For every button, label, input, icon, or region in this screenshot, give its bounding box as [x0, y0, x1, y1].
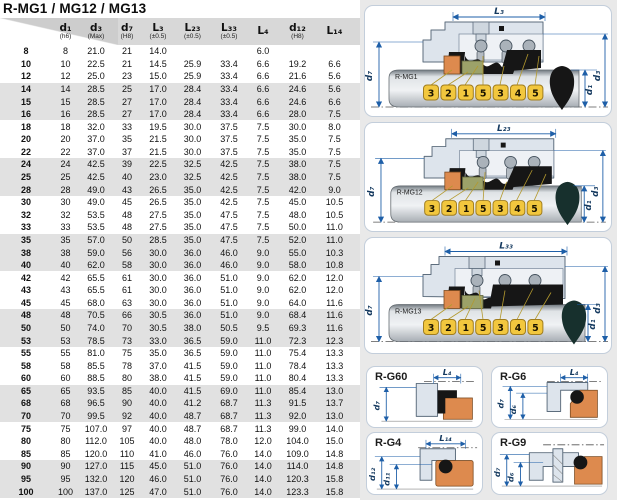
table-row: 606088.58038.041.559.011.080.413.3: [0, 372, 360, 385]
seat-title: R-G60: [375, 371, 407, 383]
table-cell: 127.0: [79, 461, 113, 471]
column-header: d₁(h6): [52, 18, 79, 45]
table-row: 252542.54023.032.542.57.538.07.5: [0, 171, 360, 184]
table-cell: 50.5: [210, 323, 248, 333]
table-cell: 76.0: [210, 474, 248, 484]
table-cell: 40.0: [141, 436, 175, 446]
table-cell: 80.4: [278, 373, 317, 383]
balloon-number: 1: [462, 323, 469, 334]
table-cell: 70: [52, 411, 79, 421]
table-cell: 9.0: [248, 285, 278, 295]
table-cell: 35: [113, 134, 141, 144]
balloon-number: 5: [480, 323, 487, 334]
table-cell: 75: [52, 424, 79, 434]
table-cell: 7.5: [317, 109, 352, 119]
row-label: 28: [0, 185, 52, 195]
table-cell: 45.0: [141, 461, 175, 471]
balloon-number: 4: [514, 204, 521, 215]
table-cell: 74.0: [79, 323, 113, 333]
table-cell: 20: [52, 134, 79, 144]
table-cell: 61: [113, 273, 141, 283]
table-cell: 12.0: [248, 436, 278, 446]
balloon-number: 3: [428, 89, 435, 100]
table-cell: 33: [113, 122, 141, 132]
table-cell: 10: [52, 59, 79, 69]
table-cell: 22.5: [79, 59, 113, 69]
table-cell: 68: [52, 398, 79, 408]
table-cell: 57.0: [79, 235, 113, 245]
table-cell: 109.0: [278, 449, 317, 459]
row-label: 32: [0, 210, 52, 220]
balloon-number: 3: [429, 204, 435, 215]
table-cell: 11.0: [248, 336, 278, 346]
table-cell: 37.5: [210, 122, 248, 132]
table-cell: 13.3: [317, 361, 352, 371]
table-cell: 56: [113, 248, 141, 258]
table-row: 323253.54827.535.047.57.548.010.5: [0, 209, 360, 222]
table-cell: 30: [52, 197, 79, 207]
balloon-number: 3: [428, 323, 435, 334]
table-cell: 46.0: [210, 260, 248, 270]
table-cell: 21: [113, 46, 141, 56]
row-label: 95: [0, 474, 52, 484]
table-cell: 14.0: [317, 424, 352, 434]
table-cell: 37.0: [79, 147, 113, 157]
table-cell: 36.0: [175, 260, 210, 270]
table-cell: 6.6: [248, 97, 278, 107]
table-row: 8821.02114.06.0: [0, 45, 360, 58]
table-cell: 13.0: [317, 411, 352, 421]
table-cell: 47.5: [210, 222, 248, 232]
table-cell: 6.6: [248, 71, 278, 81]
table-cell: 51.0: [210, 273, 248, 283]
table-cell: 27: [113, 97, 141, 107]
row-label: 65: [0, 386, 52, 396]
balloon-number: 1: [462, 89, 469, 100]
table-cell: 11.0: [248, 373, 278, 383]
table-cell: 24.6: [278, 97, 317, 107]
table-cell: 32.5: [175, 159, 210, 169]
table-cell: 35.0: [175, 235, 210, 245]
table-row: 151528.52717.028.433.46.624.66.6: [0, 95, 360, 108]
table-cell: 36.5: [175, 336, 210, 346]
table-cell: 7.5: [248, 235, 278, 245]
table-cell: 21.5: [141, 147, 175, 157]
table-cell: 78.5: [79, 336, 113, 346]
table-cell: 68.0: [79, 298, 113, 308]
table-cell: 51.0: [175, 487, 210, 497]
table-cell: 110: [113, 449, 141, 459]
table-cell: 37.0: [141, 361, 175, 371]
table-cell: 25.9: [175, 71, 210, 81]
svg-text:d₃: d₃: [591, 187, 601, 197]
table-cell: 7.5: [248, 222, 278, 232]
table-cell: 59.0: [210, 373, 248, 383]
table-body: 8821.02114.06.0101022.52114.525.933.46.6…: [0, 45, 360, 498]
svg-text:L₃₃: L₃₃: [499, 242, 513, 252]
table-cell: 63: [113, 298, 141, 308]
seat-face: [444, 291, 460, 309]
table-row: 353557.05028.535.047.57.552.011.0: [0, 234, 360, 247]
seal-cross-section-rmg1: 3215345 R-MG1 L₃ d₇ d₁ d₃: [365, 6, 611, 116]
row-label: 33: [0, 222, 52, 232]
page-title: R-MG1 / MG12 / MG13: [3, 1, 146, 16]
table-cell: 50.0: [278, 222, 317, 232]
table-cell: 30.0: [141, 298, 175, 308]
table-cell: 76.0: [210, 449, 248, 459]
table-cell: 62.0: [79, 260, 113, 270]
table-cell: 41.5: [175, 386, 210, 396]
table-cell: 46.0: [210, 248, 248, 258]
table-row: 585885.57837.041.559.011.078.413.3: [0, 359, 360, 372]
table-cell: 7.5: [248, 197, 278, 207]
table-cell: 100: [52, 487, 79, 497]
table-cell: 39: [113, 159, 141, 169]
row-label: 16: [0, 109, 52, 119]
table-cell: 12.0: [317, 285, 352, 295]
table-cell: 53.5: [79, 222, 113, 232]
table-cell: 21: [113, 59, 141, 69]
table-cell: 42.5: [210, 159, 248, 169]
svg-text:L₄: L₄: [570, 367, 579, 377]
table-cell: 35.0: [141, 348, 175, 358]
table-cell: 24.6: [278, 84, 317, 94]
table-cell: 90: [113, 398, 141, 408]
table-cell: 78: [113, 361, 141, 371]
table-row: 9090127.011545.051.076.014.0114.014.8: [0, 460, 360, 473]
table-cell: 19.5: [141, 122, 175, 132]
set-screw: [499, 26, 504, 31]
table-cell: 88.5: [79, 373, 113, 383]
table-cell: 11.0: [248, 361, 278, 371]
table-cell: 37.5: [210, 134, 248, 144]
table-cell: 30.5: [141, 323, 175, 333]
table-cell: 11.3: [248, 411, 278, 421]
table-cell: 46.0: [175, 449, 210, 459]
table-cell: 93.5: [79, 386, 113, 396]
table-cell: 7.5: [248, 210, 278, 220]
table-row: 505074.07030.538.050.59.569.311.6: [0, 322, 360, 335]
seat-title: R-G9: [500, 437, 526, 449]
table-row: 686896.59040.041.268.711.391.513.7: [0, 397, 360, 410]
table-cell: 9.0: [248, 248, 278, 258]
table-cell: 6.6: [248, 59, 278, 69]
table-cell: 48.7: [175, 411, 210, 421]
table-cell: 33.4: [210, 71, 248, 81]
table-cell: 38: [52, 248, 79, 258]
table-cell: 99.0: [278, 424, 317, 434]
row-label: 68: [0, 398, 52, 408]
table-cell: 48.7: [175, 424, 210, 434]
balloon-number: 5: [532, 89, 539, 100]
table-cell: 15.8: [317, 474, 352, 484]
table-row: 8080112.010540.048.078.012.0104.015.0: [0, 435, 360, 448]
table-cell: 33.4: [210, 109, 248, 119]
table-cell: 38.0: [278, 172, 317, 182]
table-cell: 60: [52, 373, 79, 383]
table-cell: 9.0: [248, 310, 278, 320]
svg-text:L₂₃: L₂₃: [497, 124, 510, 134]
table-cell: 30.0: [141, 260, 175, 270]
row-label: 55: [0, 348, 52, 358]
column-header: [0, 18, 52, 45]
table-cell: 33.4: [210, 97, 248, 107]
table-cell: 13.3: [317, 348, 352, 358]
table-cell: 42.5: [210, 172, 248, 182]
table-cell: 90: [52, 461, 79, 471]
primary-face: [462, 177, 483, 190]
table-cell: 81.0: [79, 348, 113, 358]
table-cell: 49.0: [79, 197, 113, 207]
table-row: 424265.56130.036.051.09.062.012.0: [0, 271, 360, 284]
table-cell: 68.7: [210, 411, 248, 421]
seat-title: R-G4: [375, 437, 401, 449]
table-cell: 28.4: [175, 97, 210, 107]
table-cell: 114.0: [278, 461, 317, 471]
table-cell: 9.0: [248, 260, 278, 270]
table-cell: 72.3: [278, 336, 317, 346]
table-cell: 7.5: [317, 172, 352, 182]
table-row: 101022.52114.525.933.46.619.26.6: [0, 58, 360, 71]
column-header: d₁₂(H8): [278, 18, 317, 45]
column-header: d₃(Max): [79, 18, 113, 45]
dim-d3-label: d₃: [593, 71, 603, 81]
table-cell: 46.0: [141, 474, 175, 484]
table-cell: 51.0: [210, 298, 248, 308]
table-cell: 58.0: [278, 260, 317, 270]
row-label: 30: [0, 197, 52, 207]
table-row: 202037.03521.530.037.57.535.07.5: [0, 133, 360, 146]
table-cell: 51.0: [175, 461, 210, 471]
table-cell: 85: [52, 449, 79, 459]
svg-text:L₄: L₄: [443, 367, 452, 377]
table-cell: 48: [113, 210, 141, 220]
table-cell: 33.0: [141, 336, 175, 346]
table-row: 707099.59240.048.768.711.392.013.0: [0, 410, 360, 423]
table-cell: 11.6: [317, 310, 352, 320]
table-cell: 42.5: [79, 172, 113, 182]
table-cell: 123.3: [278, 487, 317, 497]
balloon-number: 5: [480, 204, 486, 215]
table-cell: 30.0: [141, 273, 175, 283]
table-cell: 137.0: [79, 487, 113, 497]
table-cell: 75.4: [278, 348, 317, 358]
balloon-number: 2: [446, 204, 452, 215]
table-cell: 42.5: [210, 197, 248, 207]
table-cell: 14: [52, 84, 79, 94]
dim-top-label: L₃: [494, 7, 504, 17]
diagram-panel-rmg1: 3215345 R-MG1 L₃ d₇ d₁ d₃: [364, 5, 612, 117]
table-row: 100100137.012547.051.076.014.0123.315.8: [0, 485, 360, 498]
table-cell: 7.5: [248, 122, 278, 132]
table-cell: 51.0: [210, 285, 248, 295]
table-cell: 15: [52, 97, 79, 107]
table-cell: 38.0: [141, 373, 175, 383]
table-cell: 5.6: [317, 71, 352, 81]
table-cell: 28.5: [79, 97, 113, 107]
table-cell: 120.0: [79, 449, 113, 459]
balloon-number: 5: [480, 89, 487, 100]
table-cell: 120: [113, 474, 141, 484]
svg-text:L₁₄: L₁₄: [439, 433, 452, 443]
svg-text:d₃: d₃: [593, 303, 603, 313]
table-cell: 104.0: [278, 436, 317, 446]
table-cell: 28.4: [175, 84, 210, 94]
table-cell: 6.6: [317, 59, 352, 69]
table-cell: 125: [113, 487, 141, 497]
table-cell: 36.0: [175, 298, 210, 308]
row-label: 58: [0, 361, 52, 371]
table-cell: 69.0: [210, 386, 248, 396]
row-label: 14: [0, 84, 52, 94]
table-cell: 9.0: [248, 273, 278, 283]
table-cell: 38.0: [175, 323, 210, 333]
balloon-number: 3: [497, 89, 504, 100]
table-cell: 6.6: [248, 109, 278, 119]
shaft-label: R-MG12: [397, 190, 423, 197]
table-cell: 49.0: [79, 185, 113, 195]
row-label: 38: [0, 248, 52, 258]
row-label: 60: [0, 373, 52, 383]
column-header: L₄: [248, 18, 278, 45]
dim-d1-label: d₁: [585, 85, 595, 95]
table-row: 7575107.09740.048.768.711.399.014.0: [0, 422, 360, 435]
table-cell: 33.4: [210, 84, 248, 94]
table-cell: 7.5: [317, 134, 352, 144]
table-cell: 36.0: [175, 273, 210, 283]
table-cell: 47.5: [210, 235, 248, 245]
table-cell: 30.0: [175, 122, 210, 132]
table-cell: 58: [113, 260, 141, 270]
table-cell: 48: [113, 222, 141, 232]
row-label: 100: [0, 487, 52, 497]
diagram-column: 3215345 R-MG1 L₃ d₇ d₁ d₃: [360, 0, 617, 500]
row-label: 75: [0, 424, 52, 434]
table-cell: 70: [113, 323, 141, 333]
table-cell: 92: [113, 411, 141, 421]
row-label: 42: [0, 273, 52, 283]
table-cell: 65.5: [79, 285, 113, 295]
table-row: 282849.04326.535.042.57.542.09.0: [0, 183, 360, 196]
table-cell: 50: [113, 235, 141, 245]
table-cell: 24: [52, 159, 79, 169]
table-cell: 11.6: [317, 298, 352, 308]
table-cell: 22: [52, 147, 79, 157]
table-row: 404062.05830.036.046.09.058.010.8: [0, 259, 360, 272]
balloon-number: 4: [515, 323, 522, 334]
table-cell: 15.0: [317, 436, 352, 446]
table-cell: 25.9: [175, 59, 210, 69]
table-cell: 30.5: [141, 310, 175, 320]
column-header: L₃₃(±0.5): [210, 18, 248, 45]
table-cell: 36.0: [175, 310, 210, 320]
row-label: 43: [0, 285, 52, 295]
table-cell: 21.0: [79, 46, 113, 56]
table-cell: 45.0: [278, 197, 317, 207]
balloon-number: 1: [463, 204, 469, 215]
table-row: 161628.52717.028.433.46.628.07.5: [0, 108, 360, 121]
table-cell: 12.0: [317, 273, 352, 283]
table-cell: 25.0: [79, 71, 113, 81]
table-cell: 107.0: [79, 424, 113, 434]
table-cell: 35.0: [175, 210, 210, 220]
svg-text:d₆: d₆: [506, 472, 516, 482]
table-cell: 10.5: [317, 210, 352, 220]
table-cell: 36.0: [175, 248, 210, 258]
table-cell: 11.0: [317, 235, 352, 245]
table-cell: 62.0: [278, 285, 317, 295]
column-header: L₁₄: [317, 18, 352, 45]
row-label: 40: [0, 260, 52, 270]
table-cell: 52.0: [278, 235, 317, 245]
row-label: 90: [0, 461, 52, 471]
table-row: 383859.05630.036.046.09.055.010.3: [0, 246, 360, 259]
table-cell: 59.0: [210, 361, 248, 371]
svg-text:d₁₂: d₁₂: [367, 467, 377, 481]
table-cell: 42: [52, 273, 79, 283]
table-cell: 40: [113, 172, 141, 182]
table-cell: 35: [52, 235, 79, 245]
table-cell: 26.5: [141, 185, 175, 195]
table-cell: 65.5: [79, 273, 113, 283]
table-cell: 78.4: [278, 361, 317, 371]
table-cell: 10.3: [317, 248, 352, 258]
table-cell: 6.6: [248, 84, 278, 94]
table-cell: 80: [113, 373, 141, 383]
svg-text:d₁: d₁: [588, 319, 598, 329]
seal-cross-section-rmg13: 3215345 R-MG13 L₃₃ d₇ d₁ d₃: [365, 238, 611, 353]
table-cell: 32: [52, 210, 79, 220]
table-cell: 36.0: [175, 285, 210, 295]
table-cell: 14.0: [248, 474, 278, 484]
table-cell: 85: [113, 386, 141, 396]
table-cell: 53.5: [79, 210, 113, 220]
table-cell: 37.5: [210, 147, 248, 157]
table-cell: 13.3: [317, 373, 352, 383]
table-row: 121225.02315.025.933.46.621.65.6: [0, 70, 360, 83]
table-cell: 40.0: [141, 386, 175, 396]
table-cell: 41.5: [175, 373, 210, 383]
table-cell: 7.5: [248, 172, 278, 182]
row-label: 24: [0, 159, 52, 169]
row-label: 70: [0, 411, 52, 421]
table-cell: 25: [52, 172, 79, 182]
table-cell: 76.0: [210, 461, 248, 471]
balloon-number: 5: [532, 323, 539, 334]
row-label: 35: [0, 235, 52, 245]
part-balloons: 3215345: [424, 320, 543, 335]
dim-left-label: d₇: [365, 71, 375, 81]
row-label: 22: [0, 147, 52, 157]
table-row: 555581.07535.036.559.011.075.413.3: [0, 347, 360, 360]
table-cell: 5.6: [317, 84, 352, 94]
table-cell: 70.5: [79, 310, 113, 320]
seat-panel-rg9: R-G9 d₇ d₆: [491, 432, 608, 495]
table-row: 8585120.011041.046.076.014.0109.014.8: [0, 448, 360, 461]
table-cell: 7.5: [248, 134, 278, 144]
table-cell: 85.5: [79, 361, 113, 371]
table-cell: 30.0: [141, 285, 175, 295]
row-label: 25: [0, 172, 52, 182]
table-cell: 7.5: [248, 185, 278, 195]
column-header: d₇(H8): [113, 18, 141, 45]
row-label: 15: [0, 97, 52, 107]
table-cell: 11.3: [248, 424, 278, 434]
table-cell: 55: [52, 348, 79, 358]
table-row: 242442.53922.532.542.57.538.07.5: [0, 158, 360, 171]
table-cell: 37: [113, 147, 141, 157]
table-cell: 21.5: [141, 134, 175, 144]
